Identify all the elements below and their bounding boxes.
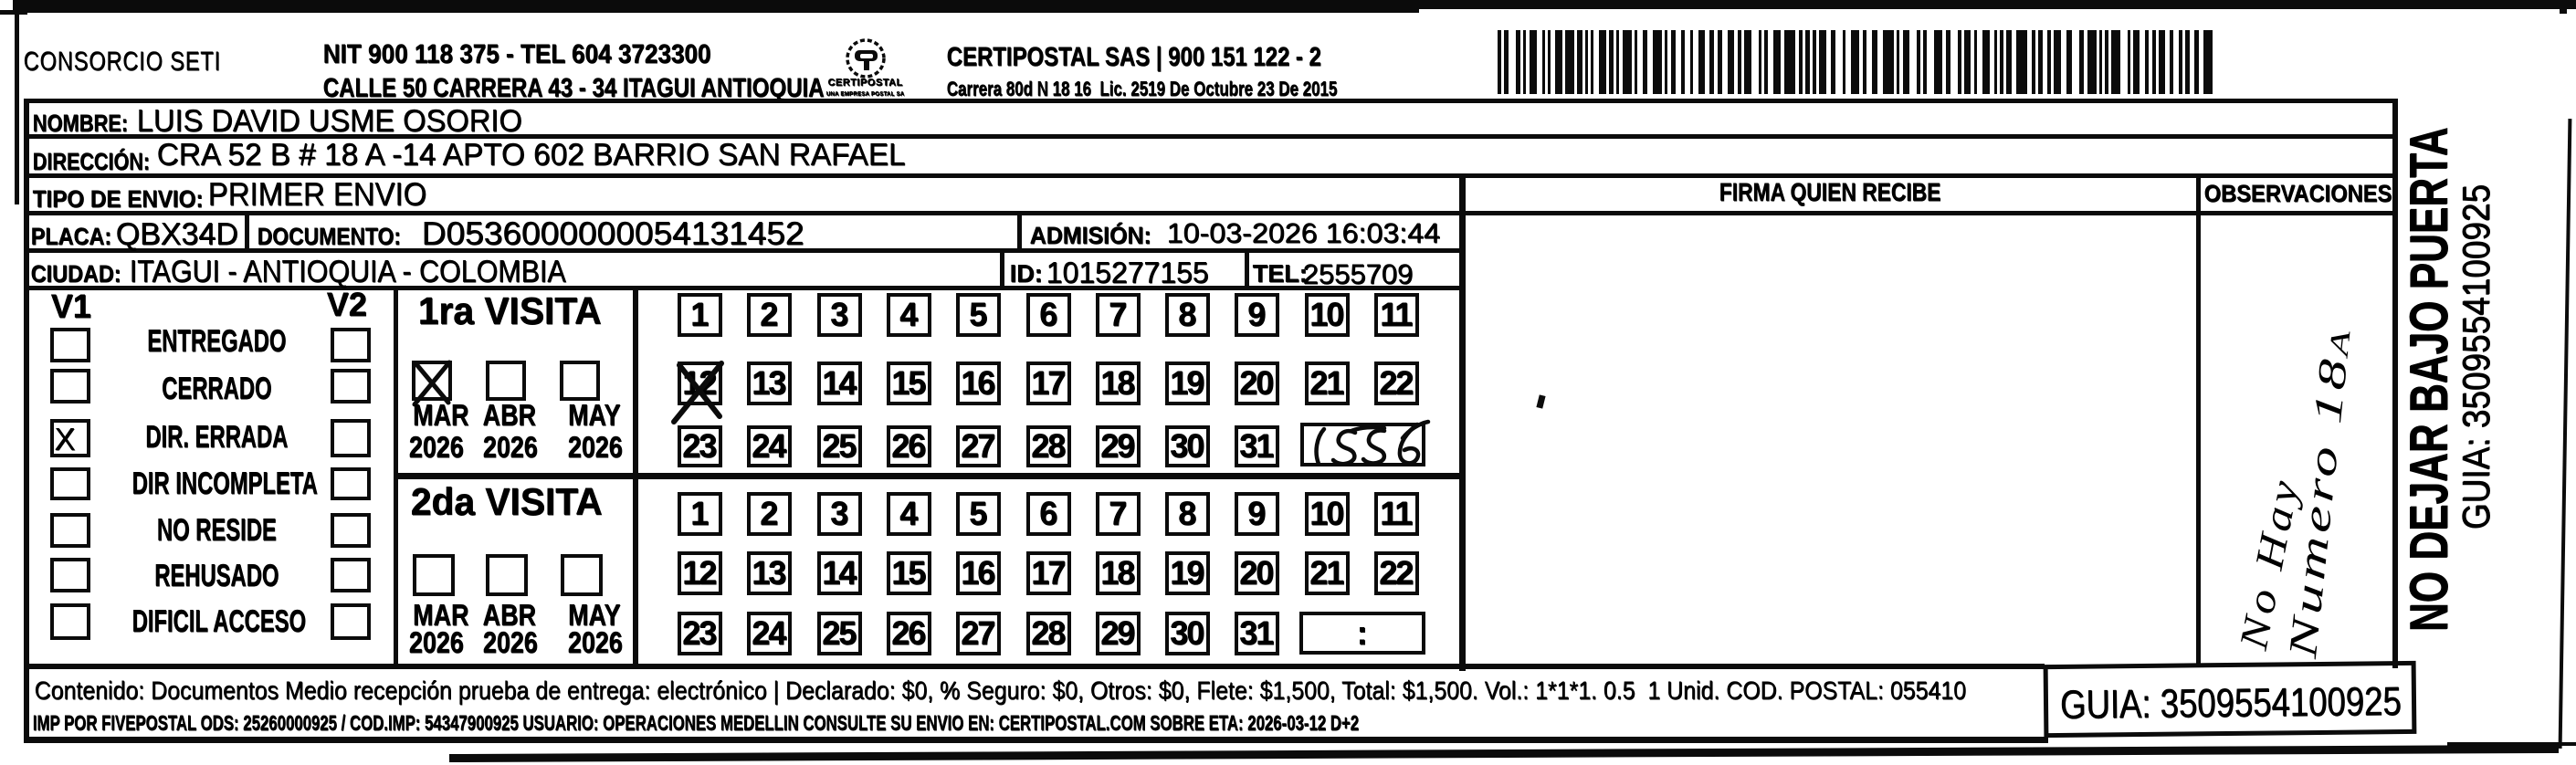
svg-text:CERTIPOSTAL: CERTIPOSTAL bbox=[828, 78, 903, 89]
svg-text:UNA EMPRESA POSTAL SA: UNA EMPRESA POSTAL SA bbox=[826, 92, 905, 98]
